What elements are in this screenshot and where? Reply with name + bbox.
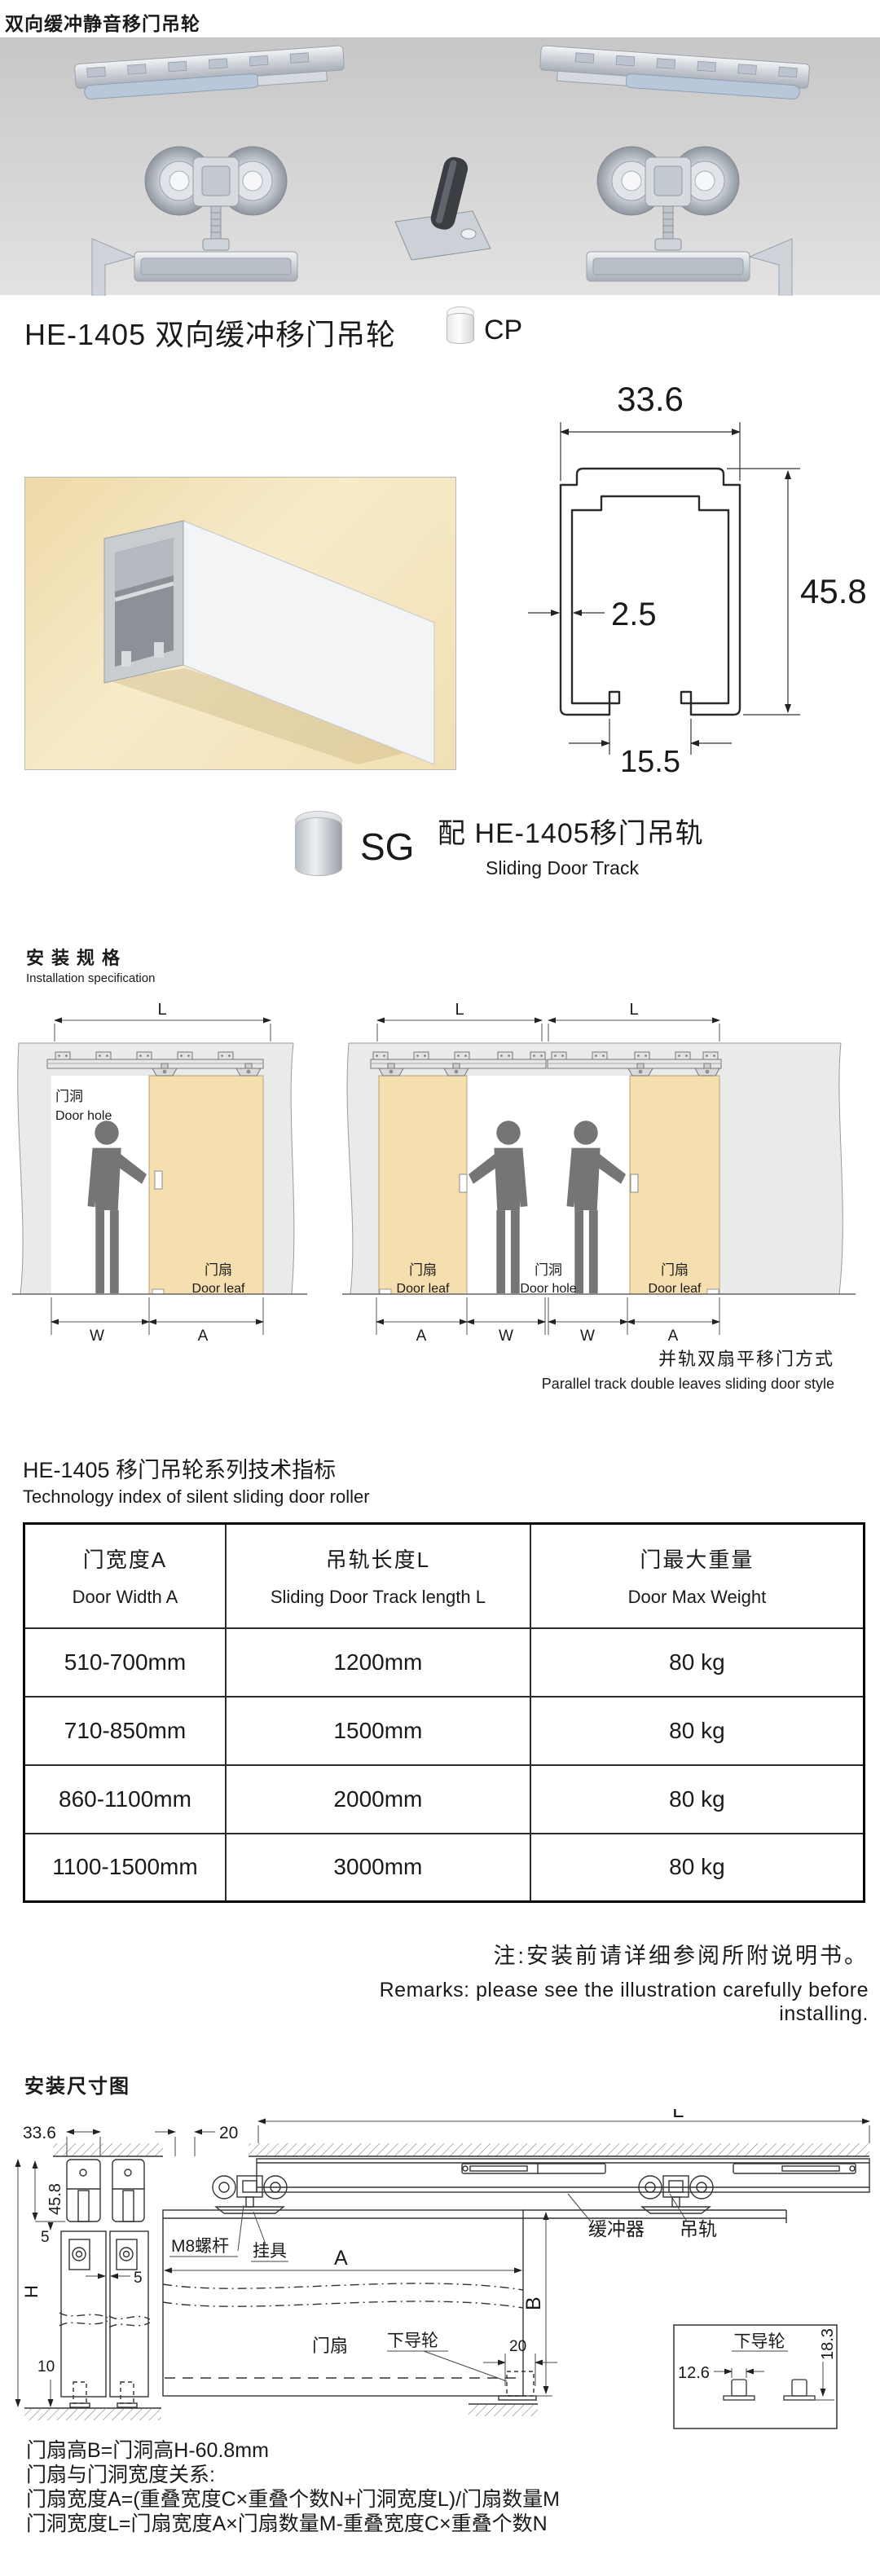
double-door-caption: 并轨双扇平移门方式 Parallel track double leaves s…	[489, 1345, 834, 1393]
dim-guide-width: 12.6	[678, 2364, 710, 2382]
label-bottom-guide: 下导轮	[387, 2332, 438, 2350]
door-leaf-label-en: Door leaf	[192, 1282, 245, 1296]
track-side-view	[257, 2159, 869, 2192]
col2-cn: 门最大重量	[532, 1543, 862, 1574]
cp-finish-label: CP	[484, 315, 522, 346]
door-leaf	[149, 1076, 263, 1294]
install-dims-heading: 安装尺寸图	[24, 2070, 130, 2098]
track-3d-render	[25, 478, 455, 769]
install-spec-heading: 安装规格	[26, 944, 127, 970]
roller-assemblies	[213, 2176, 713, 2213]
remark-en: Remarks: please see the illustration car…	[326, 1979, 869, 2026]
dim-track-length: L	[157, 1002, 166, 1019]
cell-r1c0: 710-850mm	[24, 1697, 226, 1765]
floor-guide-photo	[395, 155, 491, 260]
dim-track-length-right: L	[629, 1002, 638, 1019]
remarks-block: 注:安装前请详细参阅所附说明书。 Remarks: please see the…	[326, 1938, 869, 2026]
dim-a-right: A	[668, 1328, 679, 1345]
product-photo-banner	[0, 37, 880, 295]
door-handle	[155, 1171, 162, 1189]
table-row: 510-700mm 1200mm 80 kg	[24, 1628, 865, 1697]
door-hole-label-en: Door hole	[55, 1109, 112, 1123]
formula-relation-title: 门扇与门洞宽度关系:	[26, 2463, 560, 2487]
sg-finish-label: SG	[360, 825, 414, 869]
door-leaf-left	[379, 1076, 467, 1294]
dim-door-height-b: B	[522, 2296, 545, 2310]
door-leaf-left-label-en: Door leaf	[397, 1282, 450, 1296]
track-profile-outline	[561, 469, 740, 715]
sg-finish-icon	[295, 811, 342, 876]
page-title: 双向缓冲静音移门吊轮	[5, 8, 200, 36]
inset-title: 下导轮	[734, 2332, 785, 2351]
cell-r3c2: 80 kg	[530, 1834, 865, 1902]
single-door-diagram: L 门洞 Door hole 门扇 Door leaf W A	[12, 1002, 375, 1394]
dim-length-l: L	[672, 2109, 684, 2122]
cell-r1c2: 80 kg	[530, 1697, 865, 1765]
door-hole-label-cn: 门洞	[535, 1262, 562, 1278]
track-match-title: 配 HE-1405移门吊轨	[438, 811, 704, 851]
label-buffer: 缓冲器	[588, 2218, 645, 2239]
dim-height-label: 45.8	[800, 572, 867, 610]
cell-r0c1: 1200mm	[226, 1628, 530, 1697]
catalog-page: 双向缓冲静音移门吊轮	[0, 0, 880, 2576]
col0-en: Door Width A	[26, 1587, 224, 1608]
roller-hardware-photo	[0, 38, 880, 296]
track-cross-section-diagram: 33.6 45.8 2.5 15.5	[521, 350, 880, 774]
cell-r0c2: 80 kg	[530, 1628, 865, 1697]
table-row: 710-850mm 1500mm 80 kg	[24, 1697, 865, 1765]
dim-gap-top: 5	[41, 2229, 50, 2246]
cell-r1c1: 1500mm	[226, 1697, 530, 1765]
door-edge-view	[59, 2231, 150, 2407]
install-spec-subheading: Installation specification	[26, 971, 155, 985]
label-track: 吊轨	[680, 2218, 717, 2239]
track-photo	[24, 477, 456, 770]
dim-thickness-label: 2.5	[611, 597, 657, 632]
door-leaf-right-label-en: Door leaf	[649, 1282, 702, 1296]
dim-w-left: W	[499, 1328, 513, 1345]
label-hanger: 挂具	[253, 2242, 287, 2261]
installation-dimension-diagram: L 33.6 20	[8, 2109, 880, 2435]
dim-track-width: 33.6	[23, 2124, 56, 2142]
dim-guide-height: 18.3	[819, 2328, 837, 2360]
door-leaf-left-label-cn: 门扇	[409, 1262, 437, 1278]
cell-r2c1: 2000mm	[226, 1765, 530, 1834]
dim-track-height: 45.8	[46, 2183, 64, 2215]
label-door-leaf: 门扇	[312, 2336, 348, 2356]
track-match-subtitle: Sliding Door Track	[456, 857, 668, 879]
double-door-diagram: L L 门扇 Door leaf 门洞 Door hole 门扇 Door le…	[342, 1002, 880, 1394]
cell-r2c0: 860-1100mm	[24, 1765, 226, 1834]
col-max-weight: 门最大重量 Door Max Weight	[530, 1524, 865, 1628]
cp-finish-icon	[447, 306, 474, 344]
table-header-row: 门宽度A Door Width A 吊轨长度L Sliding Door Tra…	[24, 1524, 865, 1628]
tech-spec-table: 门宽度A Door Width A 吊轨长度L Sliding Door Tra…	[23, 1522, 865, 1903]
dim-guide-20: 20	[509, 2338, 526, 2355]
formula-hole-width: 门洞宽度L=门扇宽度A×门扇数量M-重叠宽度C×重叠个数N	[26, 2512, 560, 2536]
col0-cn: 门宽度A	[26, 1543, 224, 1574]
dimension-lines	[528, 422, 800, 755]
door-hole-label-en: Door hole	[520, 1282, 576, 1296]
door-hole-label-cn: 门洞	[55, 1089, 83, 1104]
cell-r2c2: 80 kg	[530, 1765, 865, 1834]
dim-gap-mid: 5	[134, 2270, 143, 2287]
table-row: 1100-1500mm 3000mm 80 kg	[24, 1834, 865, 1902]
dim-offset-20: 20	[219, 2124, 238, 2142]
cell-r0c0: 510-700mm	[24, 1628, 226, 1697]
label-m8-screw: M8螺杆	[171, 2237, 229, 2256]
door-hole-area	[467, 1076, 630, 1294]
dim-opening-label: 15.5	[620, 745, 680, 774]
track-end-view	[67, 2160, 144, 2222]
door-leaf-right-label-cn: 门扇	[661, 1262, 689, 1278]
col2-en: Door Max Weight	[532, 1587, 862, 1608]
remark-cn: 注:安装前请详细参阅所附说明书。	[326, 1938, 869, 1970]
caption-cn: 并轨双扇平移门方式	[489, 1345, 834, 1371]
door-leaf-label-cn: 门扇	[205, 1262, 232, 1278]
dim-w-right: W	[580, 1328, 595, 1345]
door-leaf-right	[630, 1076, 719, 1294]
col-door-width: 门宽度A Door Width A	[24, 1524, 226, 1628]
bottom-guide-inset: 下导轮 12.6 18.3	[674, 2325, 837, 2428]
caption-en: Parallel track double leaves sliding doo…	[489, 1376, 834, 1393]
dim-gap-bottom: 10	[37, 2358, 55, 2376]
dim-width-label: 33.6	[617, 380, 684, 418]
product-title: HE-1405 双向缓冲移门吊轮	[24, 311, 396, 354]
dim-height-h: H	[21, 2285, 42, 2298]
cell-r3c1: 3000mm	[226, 1834, 530, 1902]
formula-door-height: 门扇高B=门洞高H-60.8mm	[26, 2438, 560, 2463]
table-row: 860-1100mm 2000mm 80 kg	[24, 1765, 865, 1834]
col1-cn: 吊轨长度L	[227, 1543, 529, 1574]
dim-hole-width: W	[90, 1328, 104, 1345]
table-heading-cn: HE-1405 移门吊轮系列技术指标	[23, 1452, 336, 1484]
dim-a-left: A	[416, 1328, 427, 1345]
col-track-length: 吊轨长度L Sliding Door Track length L	[226, 1524, 530, 1628]
dim-door-width-a: A	[334, 2247, 348, 2270]
dim-track-length-left: L	[455, 1002, 464, 1019]
table-heading-en: Technology index of silent sliding door …	[23, 1486, 370, 1508]
dim-door-width: A	[198, 1328, 209, 1345]
col1-en: Sliding Door Track length L	[227, 1587, 529, 1608]
formula-block: 门扇高B=门洞高H-60.8mm 门扇与门洞宽度关系: 门扇宽度A=(重叠宽度C…	[26, 2438, 560, 2536]
formula-door-width: 门扇宽度A=(重叠宽度C×重叠个数N+门洞宽度L)/门扇数量M	[26, 2487, 560, 2512]
cell-r3c0: 1100-1500mm	[24, 1834, 226, 1902]
